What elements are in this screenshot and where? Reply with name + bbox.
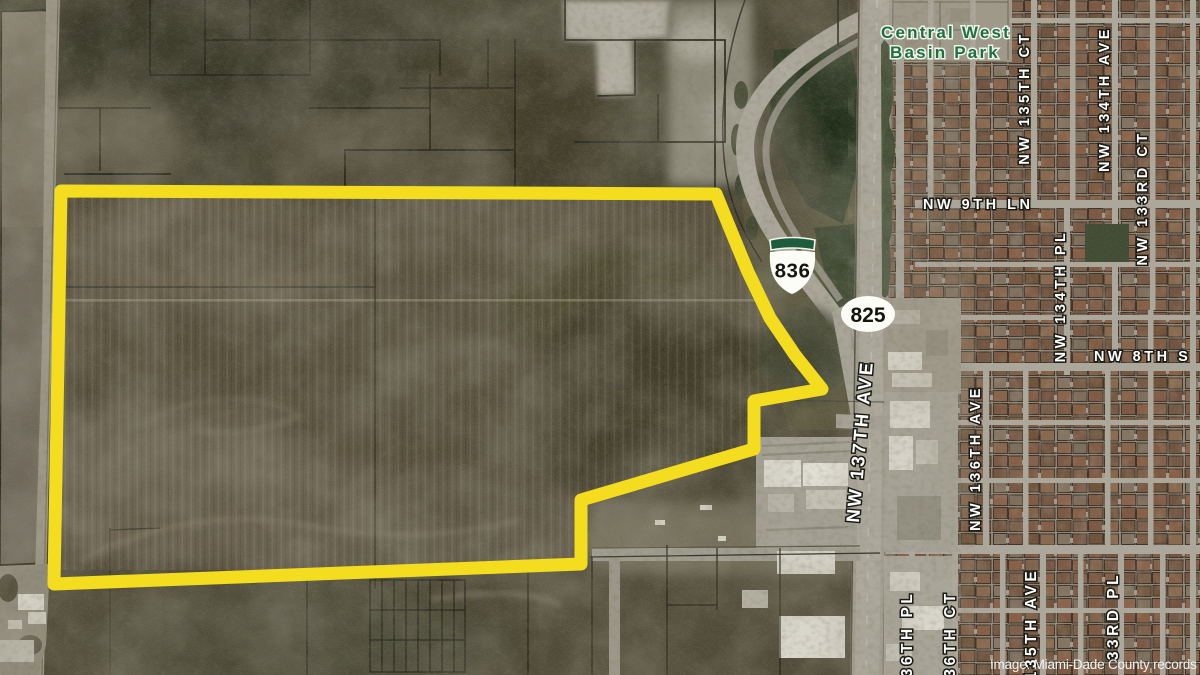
svg-text:Central West: Central West: [881, 23, 1011, 42]
svg-text:NW 134TH AVE: NW 134TH AVE: [1097, 26, 1113, 172]
svg-text:33RD PL: 33RD PL: [1105, 572, 1122, 660]
svg-text:NW 134TH PL: NW 134TH PL: [1053, 230, 1069, 363]
svg-text:NW 8TH S: NW 8TH S: [1094, 349, 1191, 365]
svg-text:136TH PL: 136TH PL: [899, 591, 916, 675]
svg-text:Image: Miami-Dade County recor: Image: Miami-Dade County records: [990, 657, 1197, 672]
svg-text:825: 825: [850, 304, 885, 327]
svg-text:NW 133RD CT: NW 133RD CT: [1135, 130, 1151, 265]
svg-text:NW 135TH CT: NW 135TH CT: [1017, 31, 1033, 165]
svg-text:136TH CT: 136TH CT: [942, 590, 959, 675]
svg-text:Basin Park: Basin Park: [890, 43, 1000, 62]
svg-text:NW 9TH LN: NW 9TH LN: [923, 197, 1033, 213]
svg-text:836: 836: [775, 260, 811, 283]
svg-text:NW 136TH AVE: NW 136TH AVE: [968, 385, 984, 531]
